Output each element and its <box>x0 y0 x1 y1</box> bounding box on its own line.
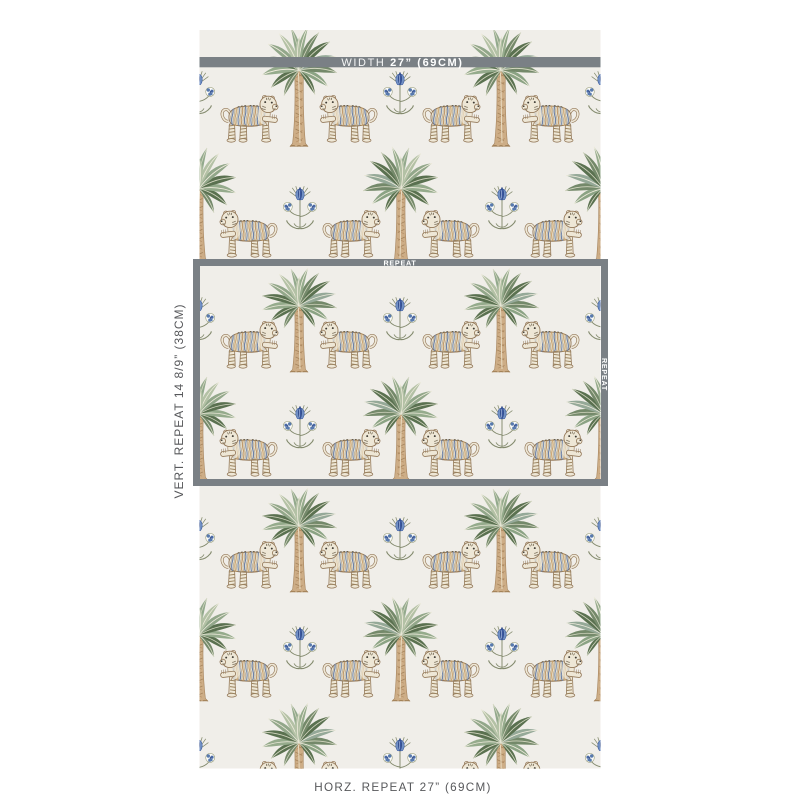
svg-text:WIDTH 27” (69CM): WIDTH 27” (69CM) <box>341 57 463 69</box>
svg-text:REPEAT: REPEAT <box>600 358 609 391</box>
svg-text:VERT. REPEAT 14 8/9” (38CM): VERT. REPEAT 14 8/9” (38CM) <box>172 303 186 498</box>
svg-text:HORZ. REPEAT 27” (69CM): HORZ. REPEAT 27” (69CM) <box>314 781 492 794</box>
svg-text:REPEAT: REPEAT <box>383 259 416 268</box>
